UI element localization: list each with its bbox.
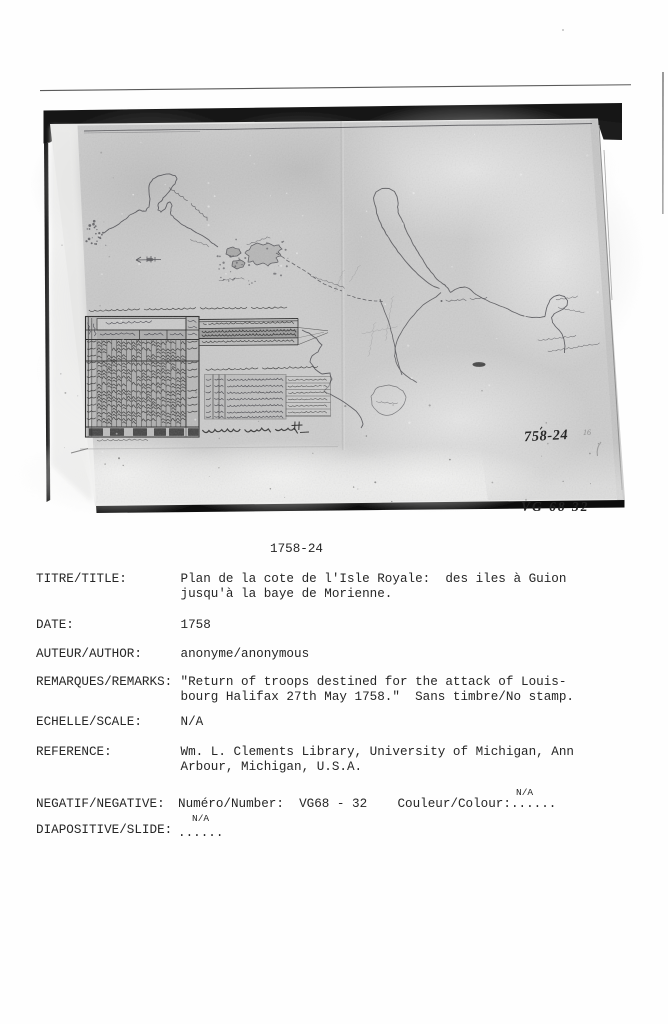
svg-text:VG 68 32: VG 68 32 [521, 499, 590, 514]
